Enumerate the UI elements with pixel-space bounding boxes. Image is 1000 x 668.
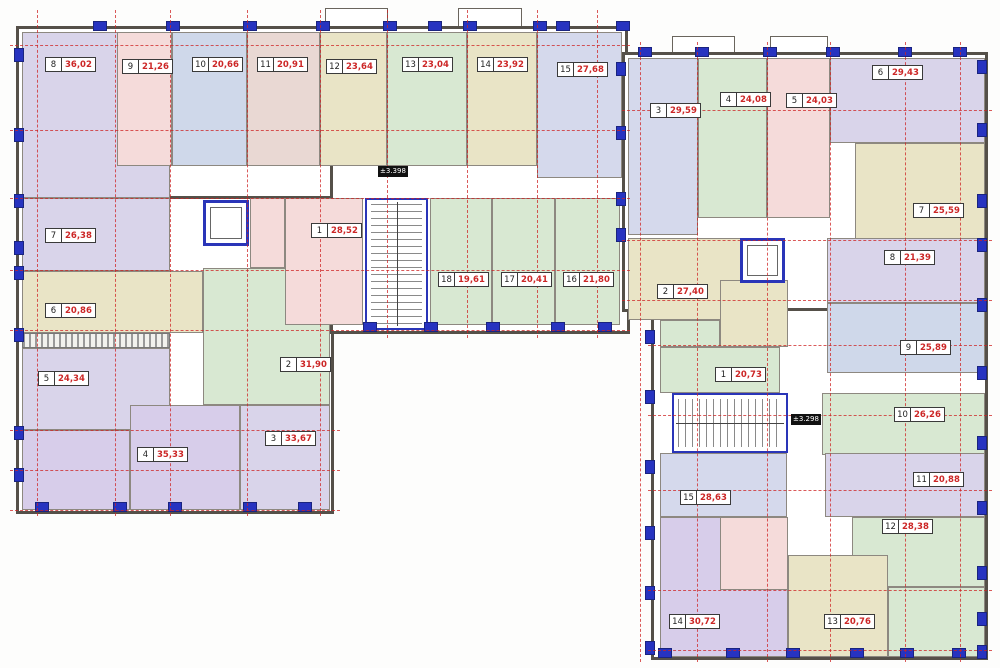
unit-b8 xyxy=(827,238,985,303)
window-icon xyxy=(428,21,442,31)
unit-number: 5 xyxy=(39,372,55,385)
unit-number: 11 xyxy=(914,473,930,486)
unit-area: 20,73 xyxy=(732,368,765,381)
window-icon xyxy=(977,645,987,659)
stair-divider xyxy=(676,423,784,424)
unit-area: 28,38 xyxy=(899,520,932,533)
unit-a17-label: 1720,41 xyxy=(501,272,552,287)
unit-a11-label: 1120,91 xyxy=(257,57,308,72)
unit-area: 33,67 xyxy=(282,432,315,445)
window-icon xyxy=(645,526,655,540)
unit-b5-label: 524,03 xyxy=(786,93,837,108)
elevator-right xyxy=(740,238,785,283)
elevator-car-icon xyxy=(210,207,242,239)
unit-area: 30,72 xyxy=(686,615,719,628)
window-icon xyxy=(977,298,987,312)
window-icon xyxy=(658,648,672,658)
unit-b6-label: 629,43 xyxy=(872,65,923,80)
unit-area: 24,03 xyxy=(803,94,836,107)
unit-number: 9 xyxy=(123,60,139,73)
unit-a17 xyxy=(492,198,555,325)
unit-a14-label: 1423,92 xyxy=(477,57,528,72)
unit-a15 xyxy=(537,32,622,178)
unit-b5 xyxy=(767,58,830,218)
unit-b2-kitchen xyxy=(720,280,788,347)
unit-number: 17 xyxy=(502,273,518,286)
unit-number: 8 xyxy=(885,251,901,264)
unit-a6 xyxy=(22,271,203,333)
unit-number: 12 xyxy=(327,60,343,73)
window-icon xyxy=(598,322,612,332)
window-icon xyxy=(383,21,397,31)
unit-number: 4 xyxy=(138,448,154,461)
elevator-car-icon xyxy=(747,245,778,276)
unit-number: 11 xyxy=(258,58,274,71)
unit-area: 25,59 xyxy=(930,204,963,217)
window-icon xyxy=(977,501,987,515)
window-icon xyxy=(850,648,864,658)
unit-number: 5 xyxy=(787,94,803,107)
unit-a4-room xyxy=(22,430,130,510)
stairwell-left xyxy=(365,198,428,330)
unit-number: 2 xyxy=(658,285,674,298)
unit-b4 xyxy=(698,58,767,218)
unit-area: 20,66 xyxy=(209,58,242,71)
window-icon xyxy=(93,21,107,31)
window-icon xyxy=(898,47,912,57)
window-icon xyxy=(977,60,987,74)
window-icon xyxy=(14,468,24,482)
window-icon xyxy=(298,502,312,512)
window-icon xyxy=(616,62,626,76)
unit-number: 14 xyxy=(670,615,686,628)
unit-a1-label: 128,52 xyxy=(311,223,362,238)
window-icon xyxy=(363,322,377,332)
unit-number: 3 xyxy=(651,104,667,117)
window-icon xyxy=(316,21,330,31)
unit-number: 14 xyxy=(478,58,494,71)
unit-area: 29,59 xyxy=(667,104,700,117)
unit-number: 8 xyxy=(46,58,62,71)
unit-a15-label: 1527,68 xyxy=(557,62,608,77)
unit-area: 23,04 xyxy=(419,58,452,71)
unit-area: 20,76 xyxy=(841,615,874,628)
unit-number: 10 xyxy=(895,408,911,421)
unit-area: 29,43 xyxy=(889,66,922,79)
window-icon xyxy=(900,648,914,658)
window-icon xyxy=(616,228,626,242)
floor-plan-canvas: 836,02921,261020,661120,911223,641323,04… xyxy=(0,0,1000,668)
window-icon xyxy=(977,366,987,380)
unit-a16 xyxy=(555,198,620,325)
balcony xyxy=(770,36,828,53)
unit-area: 31,90 xyxy=(297,358,330,371)
unit-number: 16 xyxy=(564,273,580,286)
window-icon xyxy=(977,194,987,208)
unit-b15 xyxy=(660,453,787,517)
window-icon xyxy=(977,436,987,450)
unit-b7-label: 725,59 xyxy=(913,203,964,218)
window-icon xyxy=(786,648,800,658)
unit-number: 1 xyxy=(716,368,732,381)
window-icon xyxy=(953,47,967,57)
unit-a12 xyxy=(320,32,387,166)
window-icon xyxy=(645,460,655,474)
unit-a7-label: 726,38 xyxy=(45,228,96,243)
unit-a6-label: 620,86 xyxy=(45,303,96,318)
unit-a3 xyxy=(240,405,330,510)
window-icon xyxy=(977,566,987,580)
unit-number: 6 xyxy=(46,304,62,317)
unit-a10-label: 1020,66 xyxy=(192,57,243,72)
unit-b1-entry xyxy=(660,320,720,347)
unit-a18 xyxy=(430,198,492,325)
unit-b11-label: 1120,88 xyxy=(913,472,964,487)
unit-area: 23,64 xyxy=(343,60,376,73)
unit-area: 28,63 xyxy=(697,491,730,504)
unit-area: 26,26 xyxy=(911,408,944,421)
window-icon xyxy=(638,47,652,57)
unit-number: 13 xyxy=(403,58,419,71)
unit-area: 21,26 xyxy=(139,60,172,73)
window-icon xyxy=(616,192,626,206)
window-icon xyxy=(14,426,24,440)
window-icon xyxy=(645,330,655,344)
unit-area: 25,89 xyxy=(917,341,950,354)
unit-a1-bath xyxy=(250,198,285,268)
unit-area: 20,41 xyxy=(518,273,551,286)
unit-a4-label: 435,33 xyxy=(137,447,188,462)
unit-number: 3 xyxy=(266,432,282,445)
unit-b13-label: 1320,76 xyxy=(824,614,875,629)
window-icon xyxy=(826,47,840,57)
unit-number: 1 xyxy=(312,224,328,237)
unit-a1 xyxy=(285,198,363,325)
unit-area: 24,34 xyxy=(55,372,88,385)
unit-area: 20,91 xyxy=(274,58,307,71)
unit-area: 28,52 xyxy=(328,224,361,237)
loggia-strip xyxy=(22,333,170,348)
unit-b14-bath xyxy=(720,517,788,590)
unit-number: 6 xyxy=(873,66,889,79)
unit-b8-label: 821,39 xyxy=(884,250,935,265)
unit-number: 7 xyxy=(46,229,62,242)
unit-b12-label: 1228,38 xyxy=(882,519,933,534)
window-icon xyxy=(695,47,709,57)
unit-a5-label: 524,34 xyxy=(38,371,89,386)
unit-a8-label: 836,02 xyxy=(45,57,96,72)
unit-b10-label: 1026,26 xyxy=(894,407,945,422)
unit-a9-label: 921,26 xyxy=(122,59,173,74)
unit-area: 27,68 xyxy=(574,63,607,76)
stair-divider xyxy=(397,202,398,326)
window-icon xyxy=(168,502,182,512)
window-icon xyxy=(726,648,740,658)
unit-b1-label: 120,73 xyxy=(715,367,766,382)
unit-area: 36,02 xyxy=(62,58,95,71)
unit-a10 xyxy=(172,32,247,166)
window-icon xyxy=(645,586,655,600)
window-icon xyxy=(14,241,24,255)
window-icon xyxy=(977,238,987,252)
window-icon xyxy=(556,21,570,31)
unit-a18-label: 1819,61 xyxy=(438,272,489,287)
unit-a2-label: 231,90 xyxy=(280,357,331,372)
unit-area: 21,39 xyxy=(901,251,934,264)
unit-a11 xyxy=(247,32,320,166)
window-icon xyxy=(551,322,565,332)
window-icon xyxy=(977,123,987,137)
unit-b12-room xyxy=(888,587,985,657)
window-icon xyxy=(616,126,626,140)
unit-number: 7 xyxy=(914,204,930,217)
stairwell-right xyxy=(672,393,788,453)
unit-a14 xyxy=(467,32,537,166)
unit-b2-label: 227,40 xyxy=(657,284,708,299)
window-icon xyxy=(14,266,24,280)
unit-number: 2 xyxy=(281,358,297,371)
window-icon xyxy=(35,502,49,512)
unit-b10 xyxy=(822,393,985,455)
window-icon xyxy=(533,21,547,31)
window-icon xyxy=(424,322,438,332)
unit-a9 xyxy=(117,32,172,166)
unit-area: 20,86 xyxy=(62,304,95,317)
elevation-marker: ±3.398 xyxy=(378,166,408,177)
unit-area: 19,61 xyxy=(455,273,488,286)
unit-b9 xyxy=(827,303,985,373)
unit-a16-label: 1621,80 xyxy=(563,272,614,287)
unit-b4-label: 424,08 xyxy=(720,92,771,107)
elevation-marker: ±3.298 xyxy=(791,414,821,425)
window-icon xyxy=(763,47,777,57)
unit-area: 24,08 xyxy=(737,93,770,106)
unit-b9-label: 925,89 xyxy=(900,340,951,355)
window-icon xyxy=(14,194,24,208)
unit-number: 12 xyxy=(883,520,899,533)
window-icon xyxy=(486,322,500,332)
window-icon xyxy=(14,48,24,62)
unit-b3-label: 329,59 xyxy=(650,103,701,118)
unit-a12-label: 1223,64 xyxy=(326,59,377,74)
unit-b3 xyxy=(628,58,698,235)
unit-area: 23,92 xyxy=(494,58,527,71)
unit-area: 20,88 xyxy=(930,473,963,486)
unit-number: 13 xyxy=(825,615,841,628)
unit-b15-label: 1528,63 xyxy=(680,490,731,505)
unit-b14-label: 1430,72 xyxy=(669,614,720,629)
window-icon xyxy=(463,21,477,31)
window-icon xyxy=(616,21,630,31)
unit-area: 21,80 xyxy=(580,273,613,286)
window-icon xyxy=(645,641,655,655)
unit-b13 xyxy=(788,555,888,657)
unit-area: 26,38 xyxy=(62,229,95,242)
window-icon xyxy=(243,502,257,512)
unit-number: 15 xyxy=(681,491,697,504)
window-icon xyxy=(243,21,257,31)
elevator-left xyxy=(203,200,249,246)
window-icon xyxy=(645,390,655,404)
unit-number: 10 xyxy=(193,58,209,71)
unit-a13 xyxy=(387,32,467,166)
window-icon xyxy=(14,328,24,342)
unit-area: 35,33 xyxy=(154,448,187,461)
unit-a3-label: 333,67 xyxy=(265,431,316,446)
window-icon xyxy=(14,128,24,142)
unit-number: 15 xyxy=(558,63,574,76)
window-icon xyxy=(977,612,987,626)
window-icon xyxy=(166,21,180,31)
window-icon xyxy=(952,648,966,658)
unit-number: 9 xyxy=(901,341,917,354)
unit-a13-label: 1323,04 xyxy=(402,57,453,72)
unit-number: 18 xyxy=(439,273,455,286)
unit-number: 4 xyxy=(721,93,737,106)
balcony xyxy=(325,8,388,28)
unit-area: 27,40 xyxy=(674,285,707,298)
window-icon xyxy=(113,502,127,512)
